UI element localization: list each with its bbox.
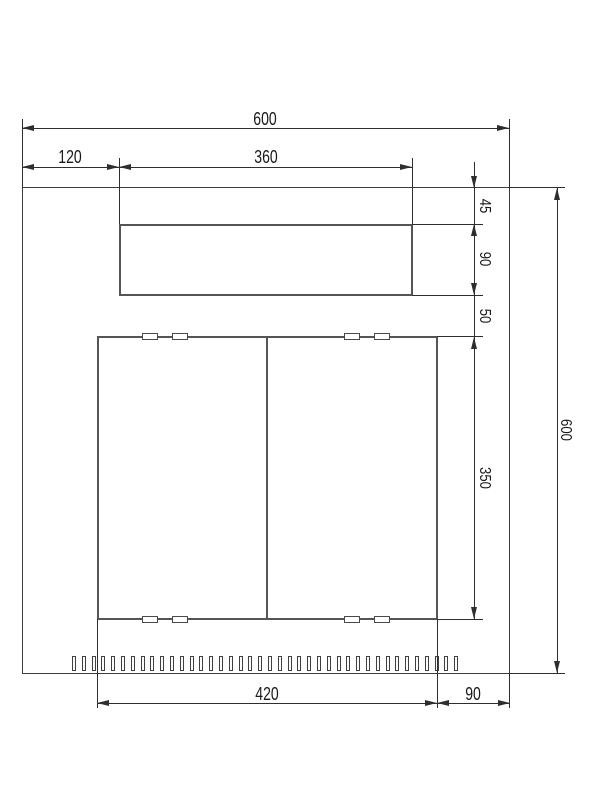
vent-slot (337, 656, 341, 671)
door-divider-line (266, 336, 268, 620)
dim-arrow (97, 700, 109, 706)
vent-slot (258, 656, 262, 671)
clip-tab (344, 333, 360, 340)
vent-slot (425, 656, 429, 671)
vent-slot (366, 656, 370, 671)
vent-slot (170, 656, 174, 671)
vent-slot (131, 656, 135, 671)
vent-slot (444, 656, 448, 671)
dim-label-right-door-height: 350 (476, 467, 492, 489)
extension-line (437, 619, 438, 708)
vent-slot (454, 656, 458, 671)
vent-slot (72, 656, 76, 671)
vent-slot (121, 656, 125, 671)
vent-slot (248, 656, 252, 671)
dim-arrow (119, 164, 131, 170)
dim-arrow (425, 700, 437, 706)
clip-tab (172, 333, 188, 340)
vent-slot (386, 656, 390, 671)
dim-label-right-top-margin: 45 (476, 199, 492, 214)
vent-slot (415, 656, 419, 671)
dim-arrow (22, 164, 34, 170)
vent-slot (141, 656, 145, 671)
vent-slot (101, 656, 105, 671)
dim-arrow (471, 224, 477, 236)
dim-label-bottom-door-width: 420 (255, 685, 278, 703)
clip-tab (142, 333, 158, 340)
top-cutout-outline (119, 224, 413, 296)
dim-label-top-cutout-width: 360 (254, 148, 277, 166)
vent-slot (111, 656, 115, 671)
dim-arrow (22, 125, 34, 131)
vent-slot (219, 656, 223, 671)
vent-slot (307, 656, 311, 671)
clip-tab (374, 333, 390, 340)
dim-label-right-gap: 50 (476, 309, 492, 324)
dim-label-bottom-right-offset: 90 (465, 685, 481, 703)
dim-arrow (498, 700, 510, 706)
dim-label-top-left-offset: 120 (58, 148, 81, 166)
vent-slot (190, 656, 194, 671)
dim-arrow (400, 164, 412, 170)
vent-slot (346, 656, 350, 671)
vent-slot (209, 656, 213, 671)
vent-slot (405, 656, 409, 671)
extension-line (437, 619, 483, 620)
vent-slot (229, 656, 233, 671)
clip-tab (344, 616, 360, 623)
vent-slot (239, 656, 243, 671)
extension-line (509, 119, 510, 188)
vent-slot (278, 656, 282, 671)
vent-slot (150, 656, 154, 671)
dim-label-top-width: 600 (253, 110, 276, 128)
dim-arrow (471, 337, 477, 349)
dim-arrow (554, 661, 560, 673)
dim-arrow (471, 283, 477, 295)
vent-slot (395, 656, 399, 671)
extension-line (97, 619, 98, 708)
vent-slot (180, 656, 184, 671)
vent-slot (376, 656, 380, 671)
clip-tab (172, 616, 188, 623)
clip-tab (142, 616, 158, 623)
dim-arrow (554, 188, 560, 200)
dim-arrow (471, 176, 477, 188)
vent-slot (317, 656, 321, 671)
dim-arrow (497, 125, 509, 131)
vent-slot (297, 656, 301, 671)
dim-label-right-cutout-height: 90 (476, 252, 492, 267)
dimension-drawing-canvas: 600 120 360 45 90 50 350 600 420 90 (0, 0, 600, 800)
extension-line (509, 673, 565, 674)
clip-tab (374, 616, 390, 623)
dim-arrow (437, 700, 449, 706)
vent-slot (160, 656, 164, 671)
extension-line (412, 295, 483, 296)
vent-slot (356, 656, 360, 671)
vent-slot (288, 656, 292, 671)
vent-slot (92, 656, 96, 671)
extension-line (412, 158, 413, 224)
dim-arrow (107, 164, 119, 170)
vent-slot (199, 656, 203, 671)
vent-slot (268, 656, 272, 671)
dim-label-right-total-height: 600 (557, 419, 573, 441)
vent-slot (327, 656, 331, 671)
dim-arrow (471, 607, 477, 619)
dim-line-top-offsets (22, 167, 412, 168)
vent-slot (82, 656, 86, 671)
